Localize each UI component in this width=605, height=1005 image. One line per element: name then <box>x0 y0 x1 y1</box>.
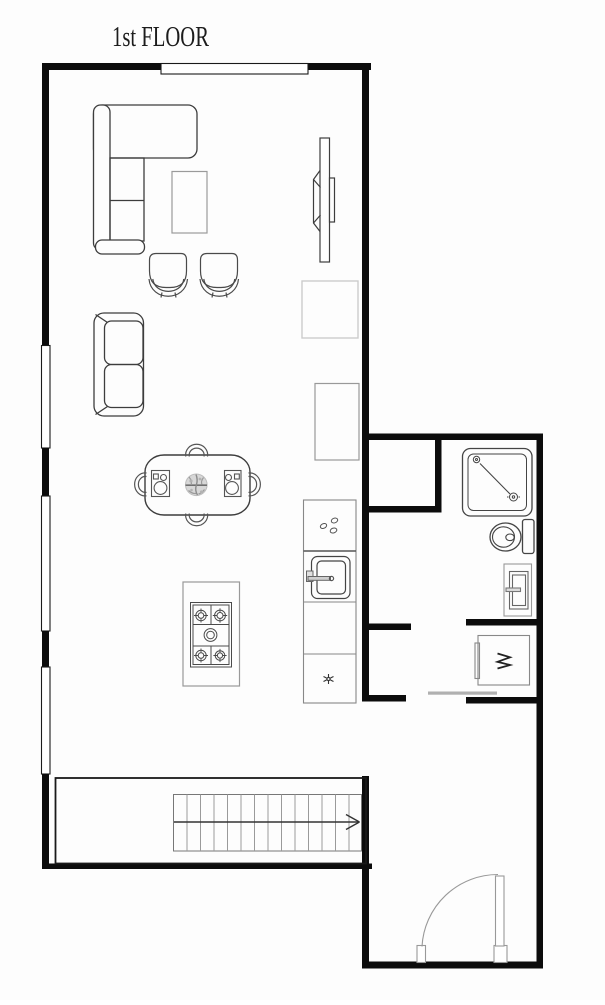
svg-text:1st FLOOR: 1st FLOOR <box>112 22 209 53</box>
